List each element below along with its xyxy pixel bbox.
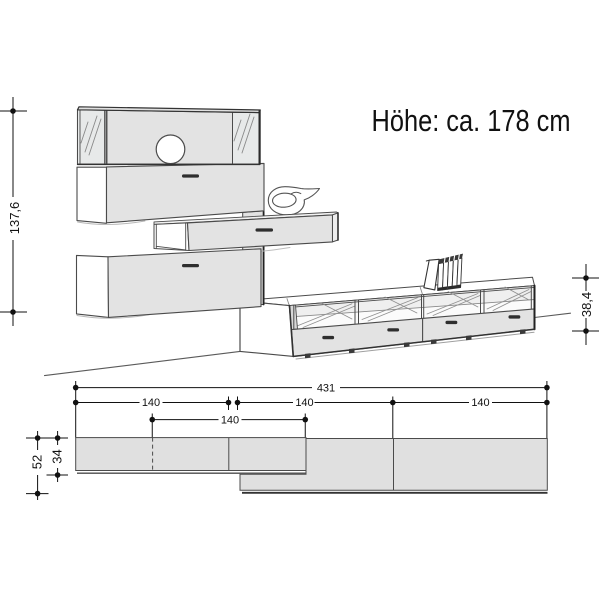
svg-text:Höhe: ca. 178 cm: Höhe: ca. 178 cm bbox=[372, 103, 571, 138]
svg-text:431: 431 bbox=[317, 382, 335, 394]
svg-text:137,6: 137,6 bbox=[7, 202, 22, 235]
svg-text:140: 140 bbox=[142, 397, 160, 409]
svg-text:140: 140 bbox=[221, 414, 239, 426]
svg-text:38,4: 38,4 bbox=[579, 292, 594, 317]
svg-text:140: 140 bbox=[295, 397, 313, 409]
svg-text:140: 140 bbox=[471, 397, 489, 409]
svg-text:52: 52 bbox=[30, 455, 45, 469]
svg-text:34: 34 bbox=[50, 449, 65, 463]
